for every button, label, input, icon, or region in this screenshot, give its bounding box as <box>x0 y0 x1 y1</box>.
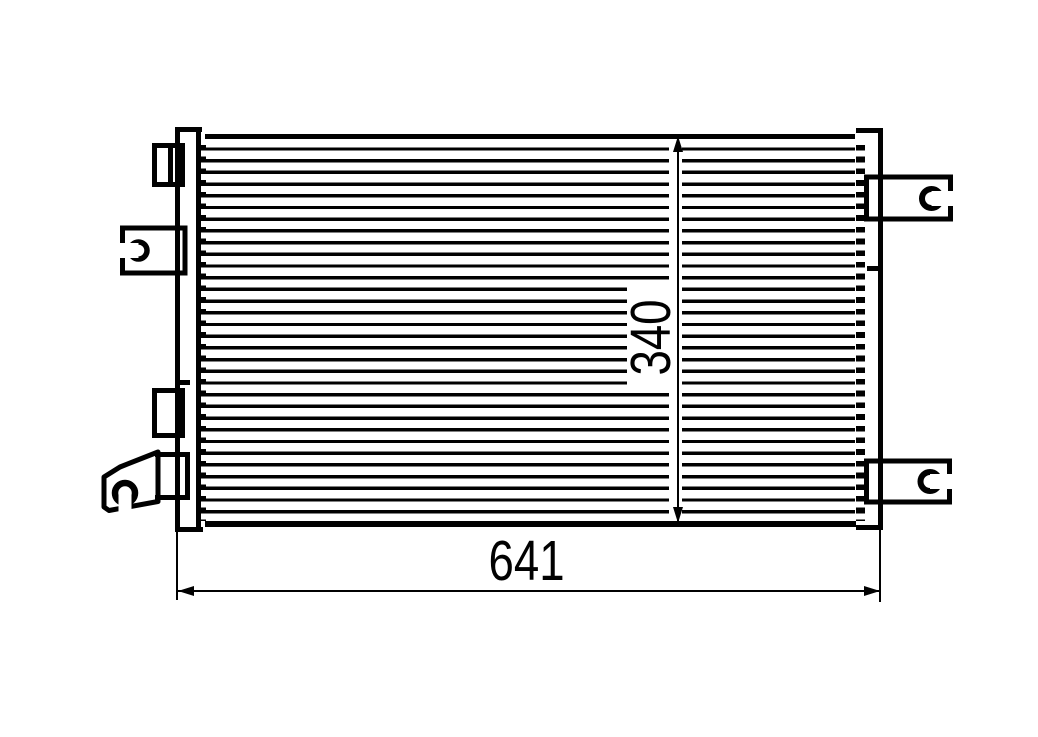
left-tank-top-cap <box>175 127 202 132</box>
core-top-edge <box>205 134 855 139</box>
right-tank-top-cap <box>856 128 883 133</box>
left-tank-seam-tick <box>178 380 190 385</box>
clip-opening <box>118 243 139 258</box>
vertical-dimension-line <box>677 137 679 523</box>
left-tank-bottom-cap <box>175 527 203 532</box>
clip-opening <box>930 474 956 489</box>
left-lower-mounting-tab <box>152 388 185 438</box>
dim-arrow-left-icon <box>178 586 194 596</box>
core-bottom-edge <box>205 521 856 527</box>
hook-opening <box>119 491 132 516</box>
left-tank-outer-wall <box>175 129 180 532</box>
clip-opening <box>932 191 958 206</box>
left-upper-tab-divider <box>168 146 173 184</box>
technical-drawing-canvas: 340 641 <box>0 0 1038 737</box>
dim-arrow-right-icon <box>864 586 880 596</box>
dim-arrow-down-icon <box>673 507 683 523</box>
height-dimension-label: 340 <box>627 286 676 389</box>
dim-arrow-up-icon <box>673 136 683 152</box>
width-dimension-label: 641 <box>477 534 577 588</box>
width-dimension-value: 641 <box>489 533 565 590</box>
height-dimension-value: 340 <box>623 299 680 375</box>
hook-bottom-bar <box>155 495 177 500</box>
right-tank-seam-tick <box>867 266 880 271</box>
hook-top-bar <box>155 452 177 457</box>
right-tank-outer-wall <box>878 128 883 530</box>
left-tank-inner-wall <box>196 132 201 531</box>
condenser-core-fins <box>205 139 855 521</box>
